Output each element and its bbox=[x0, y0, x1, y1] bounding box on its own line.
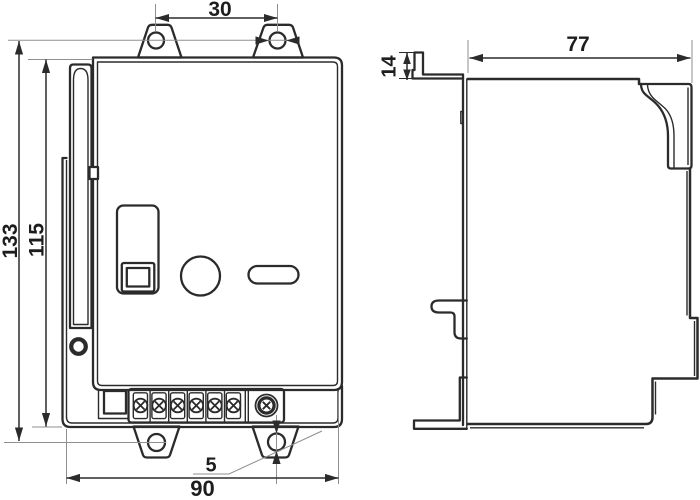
side-top-surface bbox=[467, 79, 641, 84]
front-view bbox=[63, 25, 343, 458]
dim-label-14: 14 bbox=[379, 55, 401, 78]
din-rail-hook[interactable] bbox=[432, 301, 467, 339]
front-cover bbox=[93, 58, 342, 391]
dim-label-77: 77 bbox=[566, 33, 589, 56]
side-bottom-tab bbox=[414, 378, 467, 429]
dim-depth: 77 bbox=[470, 33, 691, 62]
fixing-hole-icon bbox=[71, 339, 86, 354]
technical-drawing-page: 30 133 115 90 bbox=[0, 0, 700, 500]
side-view bbox=[413, 53, 698, 430]
strip-clip bbox=[90, 167, 99, 179]
dim-label-90: 90 bbox=[190, 476, 214, 500]
earth-screw-icon[interactable] bbox=[256, 395, 278, 417]
side-rear-profile bbox=[467, 169, 698, 425]
rear-hook bbox=[641, 84, 692, 169]
dim-label-30: 30 bbox=[208, 0, 231, 21]
dim-label-115: 115 bbox=[26, 223, 49, 257]
top-mounting-tab-left bbox=[138, 25, 182, 58]
top-rail-tab bbox=[413, 53, 464, 79]
dim-rail-tab-height: 14 bbox=[379, 53, 415, 81]
dim-label-133: 133 bbox=[0, 223, 22, 258]
dimension-drawing: 30 133 115 90 bbox=[0, 0, 700, 500]
dim-body-width: 90 bbox=[67, 474, 339, 500]
dim-top-tab-spacing: 30 bbox=[156, 0, 278, 22]
dim-body-height: 115 bbox=[26, 60, 51, 427]
dim-label-5: 5 bbox=[205, 455, 216, 477]
dim-mounting-span: 133 bbox=[0, 41, 23, 441]
terminal-area bbox=[99, 389, 285, 423]
aux-opening bbox=[104, 391, 126, 414]
